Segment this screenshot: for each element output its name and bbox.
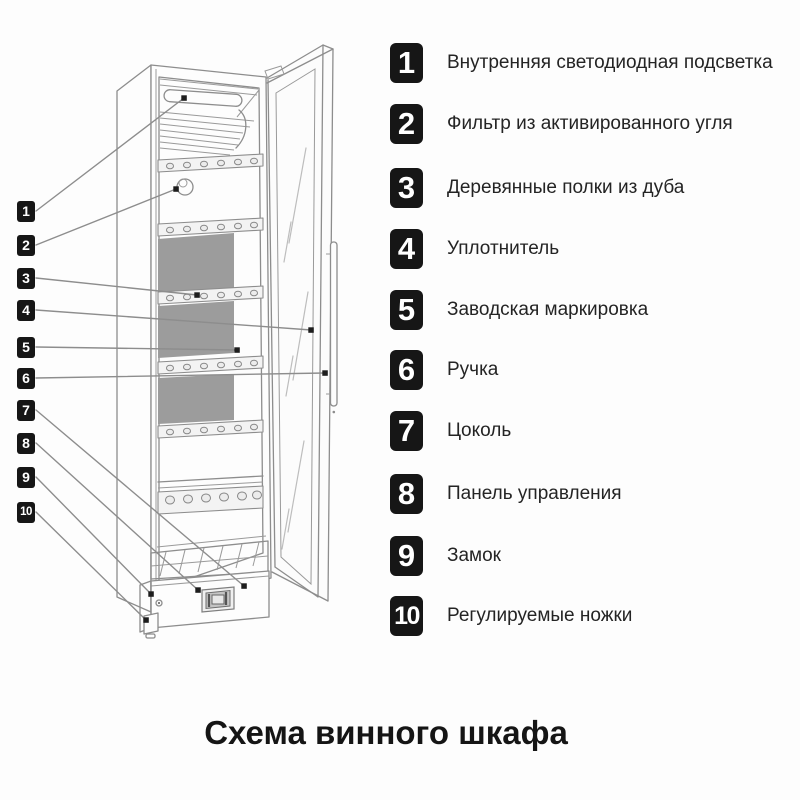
wine-cabinet-diagram-page: 1 2 3 4 5 6 7 8 9 10 1 Внутренняя светод… (0, 0, 800, 800)
legend-item-label: Панель управления (447, 483, 622, 505)
callout-badge-3: 3 (17, 268, 35, 289)
legend-item: 10 Регулируемые ножки (390, 596, 632, 636)
legend-number-badge: 9 (390, 536, 423, 576)
legend-item-label: Замок (447, 545, 501, 567)
adjustable-foot (144, 613, 158, 638)
diagram-title: Схема винного шкафа (0, 714, 772, 752)
legend-item-label: Заводская маркировка (447, 299, 648, 321)
legend-item: 8 Панель управления (390, 474, 622, 514)
legend-item: 4 Уплотнитель (390, 229, 559, 269)
callout-badge-2: 2 (17, 235, 35, 256)
cabinet-door (265, 45, 337, 601)
callout-badge-7: 7 (17, 400, 35, 421)
legend-item-label: Уплотнитель (447, 238, 559, 260)
legend-number-badge: 2 (390, 104, 423, 144)
legend-number-badge: 6 (390, 350, 423, 390)
legend-item-label: Деревянные полки из дуба (447, 177, 684, 199)
legend-item: 3 Деревянные полки из дуба (390, 168, 684, 208)
callout-badge-6: 6 (17, 368, 35, 389)
callout-badge-4: 4 (17, 300, 35, 321)
control-panel (202, 587, 234, 612)
legend-number-badge: 3 (390, 168, 423, 208)
legend-item-label: Цоколь (447, 420, 511, 442)
legend-item-label: Регулируемые ножки (447, 605, 632, 627)
legend-number-badge: 10 (390, 596, 423, 636)
legend-number-badge: 1 (390, 43, 423, 83)
legend-number-badge: 5 (390, 290, 423, 330)
legend-item: 9 Замок (390, 536, 501, 576)
legend-item: 2 Фильтр из активированного угля (390, 104, 733, 144)
callout-badge-10: 10 (17, 502, 35, 523)
legend-item-label: Ручка (447, 359, 498, 381)
legend-item-label: Внутренняя светодиодная подсветка (447, 52, 773, 74)
legend-item: 6 Ручка (390, 350, 498, 390)
legend-number-badge: 7 (390, 411, 423, 451)
callout-badge-5: 5 (17, 337, 35, 358)
callout-badge-8: 8 (17, 433, 35, 454)
legend-item-label: Фильтр из активированного угля (447, 113, 733, 135)
callout-badge-9: 9 (17, 467, 35, 488)
back-panels (158, 233, 234, 424)
legend-item: 5 Заводская маркировка (390, 290, 648, 330)
legend-item: 7 Цоколь (390, 411, 511, 451)
legend-number-badge: 4 (390, 229, 423, 269)
legend-item: 1 Внутренняя светодиодная подсветка (390, 43, 773, 83)
callout-badge-1: 1 (17, 201, 35, 222)
legend-number-badge: 8 (390, 474, 423, 514)
